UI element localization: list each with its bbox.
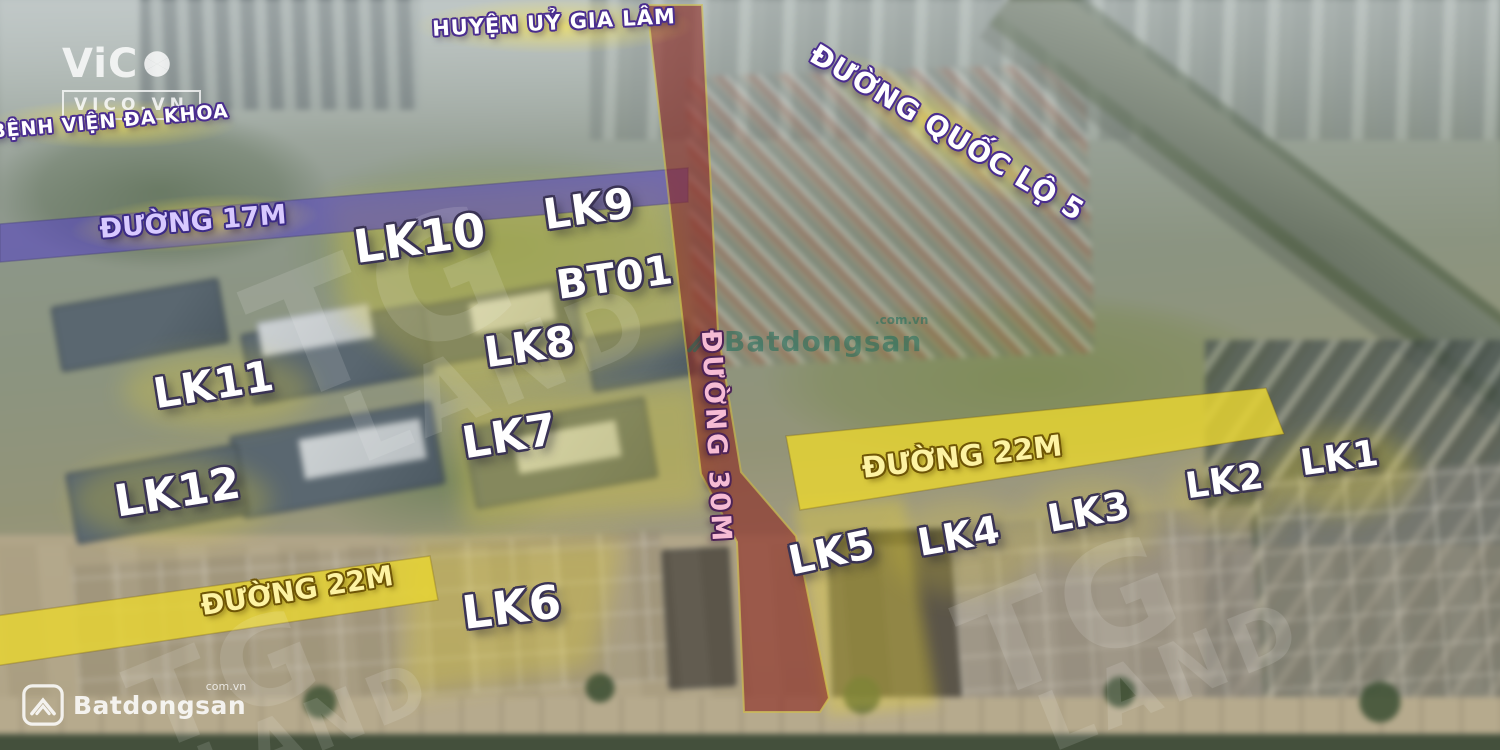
batdongsan-name: Batdongsan	[724, 325, 922, 358]
plot-label-lk9: LK9	[541, 182, 638, 236]
aperture-icon	[140, 47, 174, 81]
batdongsan-name: Batdongsan	[73, 691, 246, 720]
house-icon	[22, 684, 64, 726]
plot-label-lk8: LK8	[482, 320, 579, 374]
aerial-masterplan-map: TG LAND TG LAND TG LAND ViC VICO.VN	[0, 0, 1500, 750]
road-band-30m	[647, 5, 829, 712]
batdongsan-suffix: com.vn	[206, 680, 246, 693]
plot-label-lk6: LK6	[460, 578, 565, 636]
vico-logo-text: ViC	[62, 44, 138, 84]
batdongsan-suffix: .com.vn	[875, 313, 928, 327]
batdongsan-logo-corner: Batdongsan com.vn	[22, 684, 246, 726]
